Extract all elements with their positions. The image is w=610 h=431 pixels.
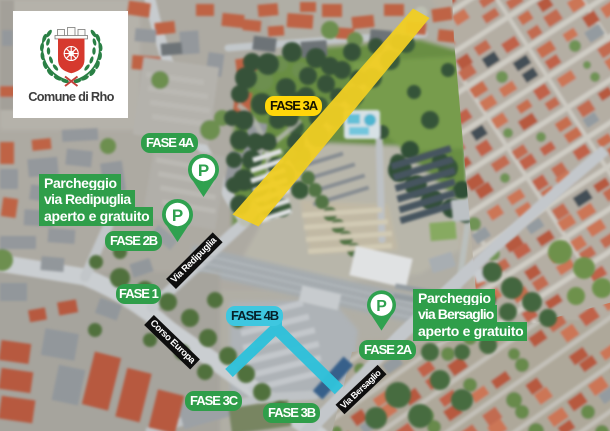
svg-text:P: P [198,161,209,180]
svg-text:P: P [172,206,183,225]
svg-text:Comune di Rho: Comune di Rho [28,89,114,104]
svg-text:P: P [376,298,387,315]
